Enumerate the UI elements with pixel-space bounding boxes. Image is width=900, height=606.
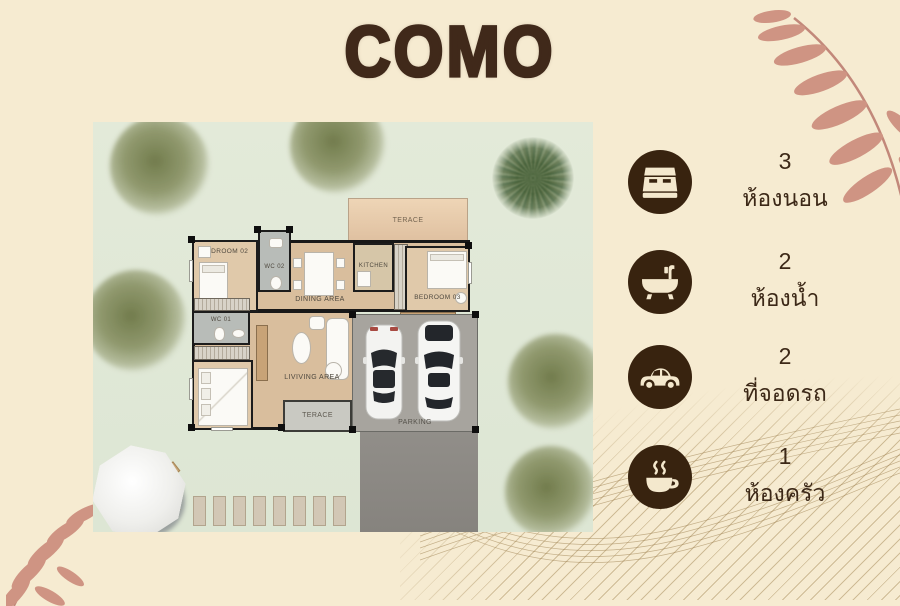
window: [468, 262, 472, 284]
car-top-view: [415, 319, 463, 423]
tv-console: [256, 325, 268, 381]
dining-table: [304, 252, 334, 296]
amenity-row-parking: 2 ที่จอดรถ: [628, 345, 878, 409]
wall-post: [286, 226, 293, 233]
car-icon: [628, 345, 692, 409]
kitchen-count: 1: [700, 443, 870, 470]
room-wc-01: WC 01: [192, 311, 250, 345]
bedroom-count: 3: [700, 148, 870, 175]
wall-post: [349, 426, 356, 433]
bathroom-count: 2: [700, 248, 870, 275]
window: [189, 260, 193, 282]
living-label: LIVIVING AREA: [275, 374, 349, 383]
stepping-stone: [273, 496, 286, 526]
amenity-row-bathrooms: 2 ห้องน้ำ: [628, 250, 878, 314]
tree: [110, 122, 210, 216]
stepping-stone: [293, 496, 306, 526]
palm-tree: [492, 137, 574, 219]
bed-icon: [628, 150, 692, 214]
wall-post: [188, 424, 195, 431]
bedroom-label: ห้องนอน: [700, 181, 870, 217]
room-bedroom-03: BEDROOM 03: [405, 246, 470, 312]
nightstand: [198, 246, 211, 258]
gazebo-canopy: [93, 440, 191, 532]
bath-icon: [628, 250, 692, 314]
bed: [427, 251, 467, 289]
wall-post: [349, 311, 356, 318]
brochure-page: { "title": "COMO", "amenities": [ { "ico…: [0, 0, 900, 600]
chair: [293, 258, 302, 268]
room-kitchen: KITCHEN: [353, 243, 394, 292]
kitchen-label: ห้องครัว: [700, 476, 870, 512]
kitchen-counter: [357, 271, 371, 287]
armchair: [309, 316, 325, 330]
amenity-row-bedrooms: 3 ห้องนอน: [628, 150, 878, 214]
wall-post: [472, 426, 479, 433]
dining-label: DINING AREA: [289, 296, 351, 303]
coffee-icon: [628, 445, 692, 509]
stepping-stone: [253, 496, 266, 526]
room-terrace-bottom: TERACE: [283, 400, 352, 432]
page-title: COMO: [0, 10, 900, 93]
wall-post: [254, 226, 261, 233]
toilet: [270, 276, 282, 290]
floor-plan: TERACE BEDROOM 02 WC 02 DINING AREA KITC…: [93, 122, 593, 532]
window: [211, 427, 233, 431]
stepping-stone: [333, 496, 346, 526]
stepping-stone: [313, 496, 326, 526]
car-top-view: [363, 323, 405, 421]
tree: [93, 270, 187, 372]
room-wc-02: WC 02: [258, 230, 291, 292]
wall-post: [472, 311, 479, 318]
tree: [505, 446, 593, 532]
stepping-stone: [193, 496, 206, 526]
closet: [194, 346, 250, 360]
tree: [290, 122, 386, 194]
wall-post: [188, 236, 195, 243]
basin: [232, 329, 245, 338]
parking-count: 2: [700, 343, 870, 370]
parking-label: ที่จอดรถ: [700, 376, 870, 412]
sink: [269, 238, 283, 248]
tree: [508, 334, 593, 430]
wall-post: [278, 424, 285, 431]
chair: [336, 280, 345, 290]
parking-area: PARKING: [352, 314, 478, 432]
bathroom-label: ห้องน้ำ: [700, 281, 870, 317]
room-terrace-top: TERACE: [348, 198, 468, 243]
wardrobe: [194, 298, 250, 311]
stepping-stone: [233, 496, 246, 526]
driveway: [360, 432, 478, 532]
chair: [336, 258, 345, 268]
stepping-stone: [213, 496, 226, 526]
chair: [293, 280, 302, 290]
wall-post: [465, 242, 472, 249]
bed: [198, 368, 248, 426]
room-master-bedroom: [192, 360, 253, 430]
amenity-row-kitchen: 1 ห้องครัว: [628, 445, 878, 509]
coffee-table: [292, 332, 311, 364]
toilet: [214, 327, 225, 341]
window: [189, 378, 193, 400]
